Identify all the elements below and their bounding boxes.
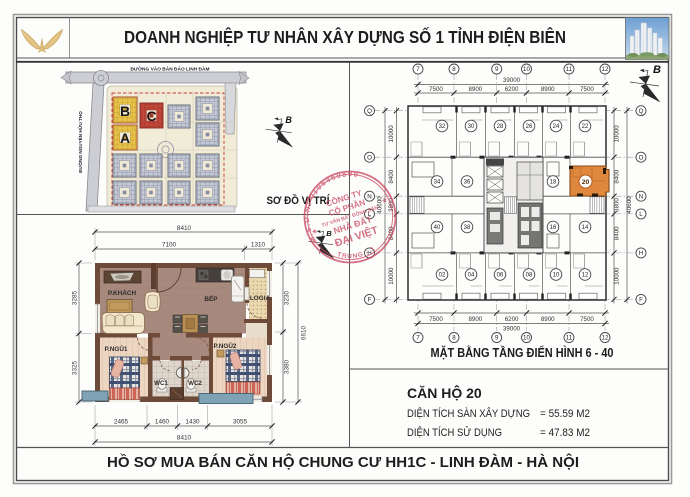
svg-text:3230: 3230	[284, 290, 291, 305]
svg-text:11: 11	[566, 335, 573, 342]
svg-text:7: 7	[416, 66, 420, 73]
svg-text:B: B	[653, 64, 661, 76]
svg-text:LOGIA: LOGIA	[250, 295, 271, 302]
svg-text:39000: 39000	[503, 77, 521, 84]
svg-text:14: 14	[582, 225, 589, 231]
svg-text:08: 08	[526, 273, 533, 279]
svg-text:04: 04	[468, 273, 475, 279]
svg-text:8900: 8900	[468, 86, 482, 93]
svg-text:36: 36	[464, 180, 471, 186]
svg-text:28: 28	[497, 124, 504, 130]
svg-text:10: 10	[523, 335, 530, 342]
svg-text:40: 40	[434, 225, 441, 231]
svg-text:9: 9	[495, 66, 499, 73]
svg-text:38: 38	[464, 225, 471, 231]
svg-text:ĐƯỜNG NGUYỄN HỮU THỌ: ĐƯỜNG NGUYỄN HỮU THỌ	[76, 111, 83, 173]
svg-text:1460: 1460	[155, 419, 170, 426]
svg-text:16: 16	[550, 225, 557, 231]
svg-text:ĐƯỜNG VÀO BÁN ĐẢO LINH ĐÀM: ĐƯỜNG VÀO BÁN ĐẢO LINH ĐÀM	[131, 65, 210, 73]
svg-text:20: 20	[582, 179, 590, 186]
svg-text:7: 7	[416, 335, 420, 342]
svg-text:1310: 1310	[251, 242, 266, 249]
svg-text:12: 12	[602, 335, 609, 342]
svg-text:HỒ SƠ MUA BÁN CĂN HỘ CHUNG CƯ: HỒ SƠ MUA BÁN CĂN HỘ CHUNG CƯ HH1C - LIN…	[107, 453, 579, 471]
svg-text:1430: 1430	[185, 419, 200, 426]
svg-text:6610: 6610	[301, 325, 308, 340]
svg-text:7500: 7500	[429, 86, 443, 93]
svg-text:02: 02	[439, 273, 446, 279]
svg-text:CĂN HỘ 20: CĂN HỘ 20	[407, 384, 482, 401]
svg-text:10000: 10000	[388, 125, 395, 143]
svg-text:11: 11	[566, 66, 573, 73]
svg-text:B: B	[285, 115, 292, 125]
svg-text:26: 26	[526, 124, 533, 130]
svg-text:12: 12	[582, 273, 589, 279]
svg-text:12: 12	[602, 66, 609, 73]
svg-text:DIỆN TÍCH SÀN XÂY DỰNG: DIỆN TÍCH SÀN XÂY DỰNG	[407, 407, 530, 420]
svg-text:8400: 8400	[614, 226, 621, 240]
svg-text:B: B	[120, 103, 130, 119]
svg-text:10000: 10000	[614, 267, 621, 285]
svg-text:DIỆN TÍCH SỬ DỤNG: DIỆN TÍCH SỬ DỤNG	[407, 426, 502, 439]
svg-text:P.NGỦ2: P.NGỦ2	[214, 341, 237, 350]
svg-text:3800: 3800	[614, 198, 621, 212]
svg-text:= 47.83 M2: = 47.83 M2	[540, 427, 590, 439]
svg-text:7100: 7100	[162, 242, 177, 249]
svg-text:6200: 6200	[505, 316, 519, 323]
svg-text:P.NGỦ1: P.NGỦ1	[105, 344, 128, 353]
svg-text:WC2: WC2	[188, 380, 202, 387]
svg-text:7500: 7500	[580, 86, 594, 93]
svg-text:10000: 10000	[388, 267, 395, 285]
svg-text:B: B	[326, 229, 332, 238]
svg-text:22: 22	[582, 124, 589, 130]
svg-text:WC1: WC1	[154, 380, 168, 387]
svg-text:8400: 8400	[614, 169, 621, 183]
svg-text:A: A	[120, 130, 130, 146]
svg-text:H: H	[639, 250, 643, 257]
svg-text:F: F	[639, 297, 643, 304]
svg-text:= 55.59 M2: = 55.59 M2	[540, 408, 590, 420]
svg-text:10000: 10000	[614, 125, 621, 143]
svg-text:O: O	[367, 154, 372, 161]
svg-text:N: N	[367, 193, 371, 200]
svg-text:Q: Q	[367, 108, 372, 115]
svg-text:8900: 8900	[541, 316, 555, 323]
svg-text:8900: 8900	[541, 86, 555, 93]
svg-text:8400: 8400	[388, 169, 395, 183]
svg-text:06: 06	[497, 273, 504, 279]
svg-text:10: 10	[523, 66, 530, 73]
svg-text:L: L	[639, 211, 643, 218]
svg-text:30: 30	[468, 124, 475, 130]
svg-text:N: N	[639, 193, 643, 200]
svg-text:34: 34	[434, 180, 441, 186]
svg-text:10: 10	[553, 273, 560, 279]
svg-text:18: 18	[550, 180, 557, 186]
svg-text:9: 9	[495, 335, 499, 342]
svg-text:O: O	[639, 154, 644, 161]
svg-text:8410: 8410	[177, 225, 192, 232]
svg-text:Q: Q	[639, 108, 644, 115]
svg-text:8: 8	[452, 66, 456, 73]
svg-text:P.KHÁCH: P.KHÁCH	[108, 288, 137, 297]
svg-text:3285: 3285	[72, 290, 79, 305]
svg-text:7500: 7500	[429, 316, 443, 323]
svg-text:6200: 6200	[505, 86, 519, 93]
svg-text:24: 24	[553, 124, 560, 130]
svg-text:8: 8	[452, 335, 456, 342]
svg-text:8900: 8900	[468, 316, 482, 323]
svg-text:39000: 39000	[503, 326, 521, 333]
svg-text:8410: 8410	[177, 435, 192, 442]
svg-text:SƠ ĐỒ VỊ TRÍ: SƠ ĐỒ VỊ TRÍ	[267, 194, 331, 207]
svg-text:40600: 40600	[626, 196, 633, 214]
svg-text:3325: 3325	[72, 360, 79, 375]
svg-text:7500: 7500	[580, 316, 594, 323]
svg-text:DOANH NGHIỆP TƯ NHÂN XÂY DỰNG: DOANH NGHIỆP TƯ NHÂN XÂY DỰNG SỐ 1 TỈNH …	[124, 27, 566, 47]
svg-text:2465: 2465	[114, 419, 129, 426]
svg-text:3380: 3380	[284, 359, 291, 374]
svg-text:F: F	[368, 297, 372, 304]
svg-text:C: C	[146, 108, 156, 124]
svg-text:32: 32	[439, 124, 446, 130]
svg-text:3055: 3055	[233, 419, 248, 426]
svg-text:MẶT BẰNG TẦNG ĐIỂN HÌNH 6 - 40: MẶT BẰNG TẦNG ĐIỂN HÌNH 6 - 40	[431, 345, 614, 360]
